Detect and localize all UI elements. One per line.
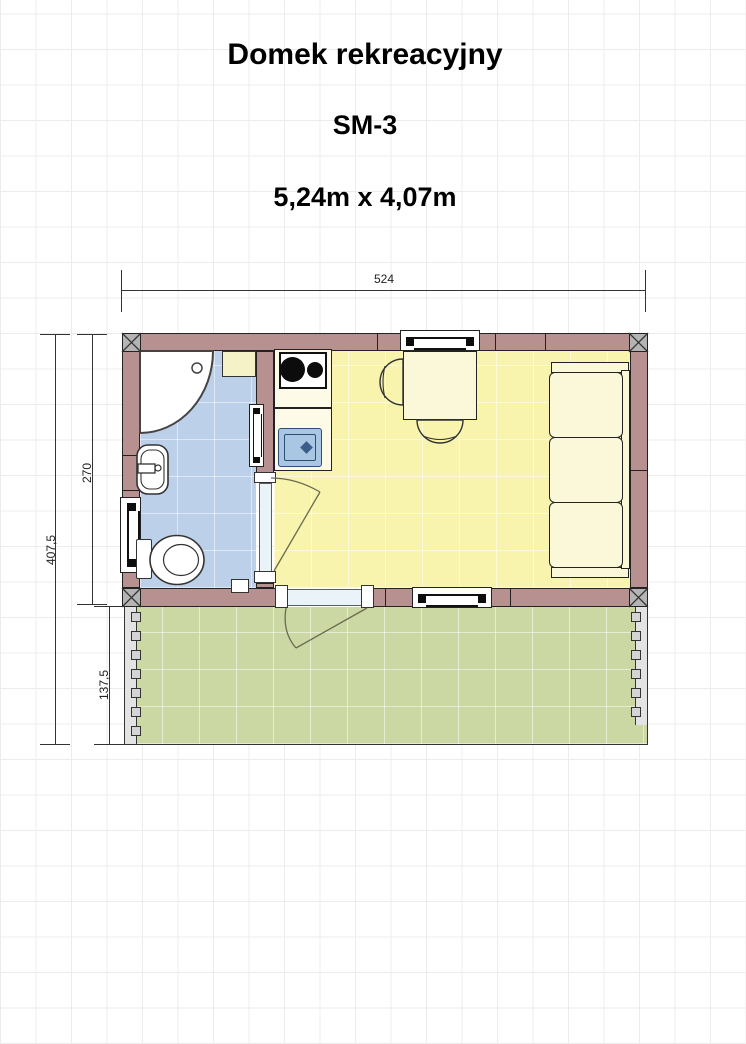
dimension-tick <box>94 606 124 607</box>
dimension-tick <box>40 334 70 335</box>
dimension-tick <box>77 604 107 605</box>
terrace-notch <box>131 650 141 660</box>
terrace-notch <box>631 707 641 717</box>
plan-title: Domek rekreacyjny <box>0 38 730 72</box>
interior-door-opening <box>259 483 272 572</box>
wall-joint <box>385 588 386 607</box>
wall-joint <box>122 490 140 491</box>
corner-post <box>629 588 648 607</box>
wall-joint <box>377 333 378 351</box>
terrace-notch <box>631 650 641 660</box>
window-frame-cap <box>418 594 426 603</box>
dimension-tick <box>94 744 124 745</box>
door-jamb <box>254 571 276 583</box>
terrace-notch <box>631 631 641 641</box>
window-frame-cap <box>466 337 474 346</box>
wall-joint <box>630 470 648 471</box>
dimension-label-terrace-depth: 137,5 <box>97 670 111 700</box>
dimension-tick <box>77 334 107 335</box>
toilet-tank <box>136 539 152 579</box>
window-glass <box>426 594 478 607</box>
window-frame-cap <box>127 503 136 511</box>
dimension-label-width: 524 <box>122 272 646 286</box>
terrace-notch <box>131 631 141 641</box>
sofa-armrest-bottom <box>551 567 629 578</box>
wall-top <box>122 333 648 351</box>
window-frame-cap <box>127 559 136 567</box>
door-jamb <box>361 585 374 608</box>
stove-burner-small <box>307 362 323 378</box>
wall-bottom-left-segment <box>122 588 278 607</box>
wall-joint <box>495 333 496 351</box>
terrace-floor <box>124 607 648 745</box>
corner-post <box>629 333 648 352</box>
window-bottom <box>412 587 492 608</box>
wall-partition-lower <box>256 583 274 588</box>
terrace-notch <box>631 669 641 679</box>
dimension-label-house-depth: 270 <box>80 463 94 483</box>
window-frame-cap <box>406 337 414 346</box>
plan-overall-size: 5,24m x 4,07m <box>0 182 730 213</box>
dining-table <box>403 351 477 420</box>
bathroom-cabinet <box>222 351 256 377</box>
exterior-door-opening <box>283 589 363 606</box>
wall-joint <box>510 588 511 607</box>
floor-plan-page: Domek rekreacyjny SM-3 5,24m x 4,07m 524… <box>0 0 746 1044</box>
sofa-cushion <box>549 372 623 438</box>
stove-burner-large <box>280 357 305 382</box>
dimension-label-total-depth: 407,5 <box>44 535 58 565</box>
dimension-tick <box>40 744 70 745</box>
terrace-notch <box>131 669 141 679</box>
terrace-notch <box>631 688 641 698</box>
bathroom-floor <box>140 351 256 588</box>
dimension-line-width <box>122 290 646 291</box>
wall-joint <box>545 333 546 351</box>
bathroom-step-box <box>231 579 249 593</box>
window-frame-cap <box>478 594 486 603</box>
terrace-notch <box>131 612 141 622</box>
wall-bottom-right-segment <box>368 588 648 607</box>
corner-post <box>122 333 141 352</box>
wall-joint <box>122 455 140 456</box>
corner-post <box>122 588 141 607</box>
window-glass <box>414 337 466 350</box>
window-top <box>400 330 480 351</box>
door-jamb <box>275 585 288 608</box>
terrace-notch <box>631 612 641 622</box>
sofa-cushion <box>549 502 623 568</box>
door-jamb <box>254 472 276 483</box>
window-frame-cap <box>253 457 260 463</box>
sofa-cushion <box>549 437 623 503</box>
terrace-notch <box>131 688 141 698</box>
terrace-notch <box>131 707 141 717</box>
window-glass <box>253 414 262 457</box>
terrace-notch <box>131 726 141 736</box>
counter-divider <box>275 407 331 409</box>
window-partition-interior <box>249 404 264 467</box>
plan-model-code: SM-3 <box>0 110 730 141</box>
